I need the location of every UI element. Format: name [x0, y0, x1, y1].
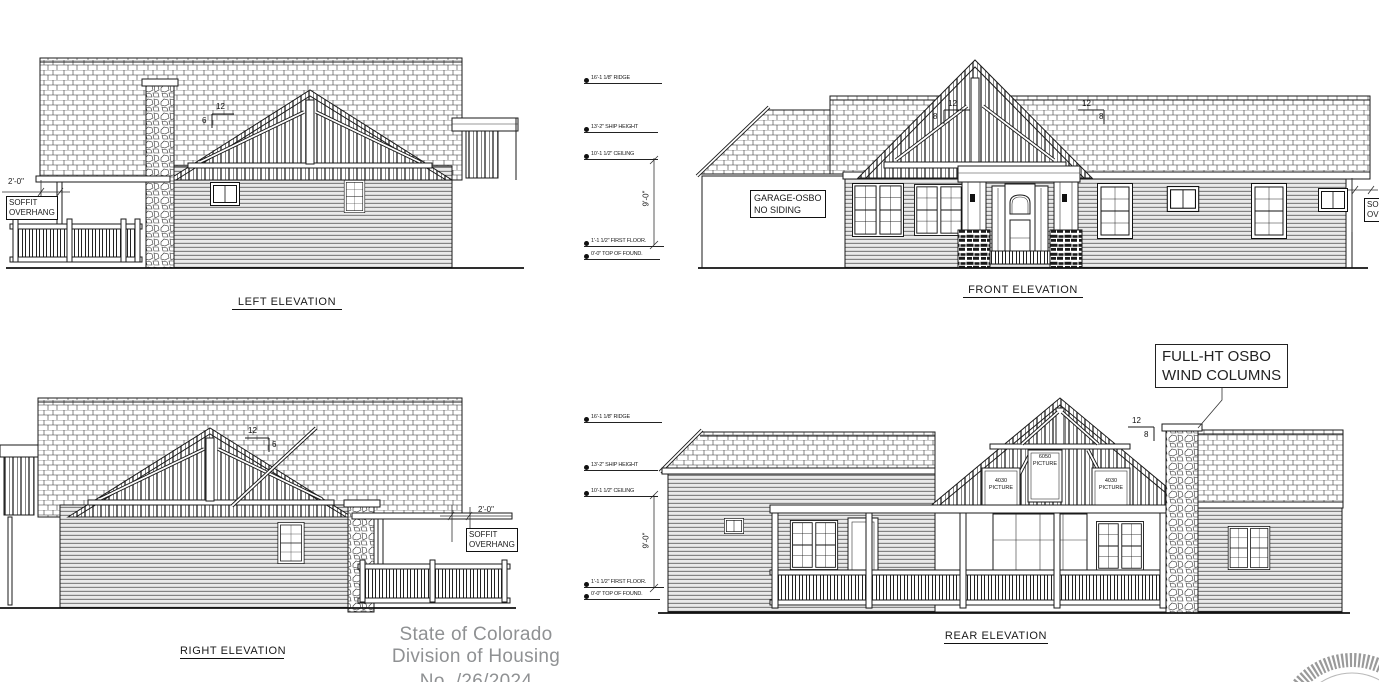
- front-elevation-title: FRONT ELEVATION: [963, 284, 1083, 298]
- porch-post: [1160, 513, 1166, 608]
- window: [278, 522, 304, 563]
- entry-column: [1054, 182, 1078, 230]
- window: [914, 185, 963, 236]
- soffit-overhang-line1: SOFFIT: [1367, 200, 1379, 210]
- wall-height-dimension-text: 9'-0": [642, 521, 651, 561]
- window: [1167, 187, 1198, 212]
- soffit-overhang-note: SOFFIT OVERHANG: [466, 528, 518, 552]
- pitch-marker: [1128, 427, 1154, 441]
- ridge-callout-text: 16'-1 1/8" RIDGE: [591, 415, 630, 421]
- window: [852, 184, 903, 237]
- elevation-marker-icon: [584, 154, 589, 159]
- elevation-marker-icon: [584, 594, 589, 599]
- wind-note-line1: FULL-HT OSBO: [1162, 347, 1281, 366]
- pitch-run-text: 12: [1082, 99, 1091, 108]
- note-leader-line: [1198, 386, 1222, 428]
- pitch-run-text: 12: [248, 426, 257, 435]
- pitch-rise-text: 6: [202, 116, 206, 125]
- porch-light: [1062, 194, 1067, 202]
- window-type-text: PICTURE: [1028, 461, 1062, 468]
- window: [1319, 189, 1348, 212]
- rear-elevation-drawing: [650, 386, 1350, 613]
- ceiling-callout: 10'-1 1/2" CEILING: [584, 152, 658, 160]
- soffit-overhang-line1: SOFFIT: [469, 530, 515, 540]
- ridge-callout-text: 16'-1 1/8" RIDGE: [591, 76, 630, 82]
- porch-light: [970, 194, 975, 202]
- ridge-callout: 16'-1 1/8" RIDGE: [584, 76, 662, 84]
- window-type-text: PICTURE: [1092, 485, 1130, 492]
- elevation-marker-icon: [584, 582, 589, 587]
- stone-column-base: [1050, 230, 1082, 268]
- ridge-callout: 16'-1 1/8" RIDGE: [584, 415, 662, 423]
- left-elevation-title: LEFT ELEVATION: [232, 296, 342, 310]
- window: [1252, 184, 1287, 239]
- soffit-overhang-line2: OVERHANG: [1367, 210, 1379, 220]
- wall-height-dimension: [650, 491, 658, 592]
- right-elevation-title: RIGHT ELEVATION: [180, 645, 284, 659]
- wall-height-dimension: [650, 156, 658, 249]
- porch-post: [960, 513, 966, 608]
- soffit-overhang-line1: SOFFIT: [9, 198, 55, 208]
- certification-seal: [1282, 660, 1379, 682]
- stone-column-base: [958, 230, 990, 268]
- first-floor-callout: 1'-1 1/2" FIRST FLOOR.: [584, 239, 664, 247]
- approval-number-partial: No. /26/2024: [326, 671, 626, 682]
- left-elevation-drawing: [2, 58, 524, 268]
- pitch-run-text: 12: [1132, 416, 1141, 425]
- ship-height-callout: 13'-2" SHIP HEIGHT: [584, 125, 658, 133]
- soffit-overhang-note-clipped: SOFFIT OVERHANG: [1364, 198, 1379, 222]
- garage-osbo-note: GARAGE-OSBO NO SIDING: [750, 190, 826, 218]
- soffit-overhang-note: SOFFIT OVERHANG: [6, 196, 58, 220]
- top-of-foundation-callout-text: 0'-0" TOP OF FOUND.: [591, 252, 642, 258]
- soffit-dimension-text: 2'-0": [478, 505, 494, 514]
- garage-note-line1: GARAGE-OSBO: [754, 192, 822, 204]
- pitch-rise-text: 8: [933, 112, 937, 121]
- window: [211, 183, 240, 206]
- elevations-line-art: [0, 0, 1379, 682]
- stone-wind-column: [1166, 431, 1198, 613]
- ceiling-callout-text: 10'-1 1/2" CEILING: [591, 152, 634, 158]
- elevation-marker-icon: [584, 127, 589, 132]
- ship-height-callout: 13'-2" SHIP HEIGHT: [584, 463, 658, 471]
- window: [344, 180, 365, 212]
- garage-note-line2: NO SIDING: [754, 204, 822, 216]
- porch-post: [866, 513, 872, 608]
- pitch-run-text: 12: [216, 102, 225, 111]
- top-of-foundation-callout: 0'-0" TOP OF FOUND.: [584, 252, 660, 260]
- ceiling-callout-text: 10'-1 1/2" CEILING: [591, 489, 634, 495]
- soffit-overhang-line2: OVERHANG: [9, 208, 55, 218]
- window: [1096, 522, 1143, 571]
- wind-note-line2: WIND COLUMNS: [1162, 366, 1281, 385]
- ship-height-callout-text: 13'-2" SHIP HEIGHT: [591, 463, 638, 469]
- window-label-4030: 4030 PICTURE: [1092, 478, 1130, 491]
- ship-height-callout-text: 13'-2" SHIP HEIGHT: [591, 125, 638, 131]
- porch-post: [1054, 513, 1060, 608]
- window: [790, 520, 837, 569]
- rear-elevation-title: REAR ELEVATION: [944, 630, 1048, 644]
- wall-height-dimension-text: 9'-0": [642, 179, 651, 219]
- front-elevation-drawing: [650, 60, 1378, 268]
- wind-columns-note: FULL-HT OSBO WIND COLUMNS: [1155, 344, 1288, 388]
- top-of-foundation-callout: 0'-0" TOP OF FOUND.: [584, 592, 660, 600]
- window: [1098, 184, 1133, 239]
- porch-railing: [772, 574, 1168, 602]
- elevation-marker-icon: [584, 78, 589, 83]
- elevation-marker-icon: [584, 417, 589, 422]
- entry-column: [962, 182, 986, 230]
- pitch-rise-text: 6: [272, 440, 276, 449]
- pitch-run-text: 12: [948, 99, 957, 108]
- first-floor-callout: 1'-1 1/2" FIRST FLOOR.: [584, 580, 664, 588]
- first-floor-callout-text: 1'-1 1/2" FIRST FLOOR.: [591, 580, 646, 586]
- elevation-drawing-sheet: 2'-0" SOFFIT OVERHANG 12 6 LEFT ELEVATIO…: [0, 0, 1379, 682]
- elevation-marker-icon: [584, 465, 589, 470]
- window-label-6050: 6050 PICTURE: [1028, 454, 1062, 467]
- first-floor-callout-text: 1'-1 1/2" FIRST FLOOR.: [591, 239, 646, 245]
- pitch-rise-text: 8: [1099, 112, 1103, 121]
- ceiling-callout: 10'-1 1/2" CEILING: [584, 489, 658, 497]
- porch-post: [772, 513, 778, 608]
- elevation-marker-icon: [584, 491, 589, 496]
- agency-name-line2: Division of Housing: [326, 646, 626, 668]
- elevation-marker-icon: [584, 254, 589, 259]
- soffit-dimension-text: 2'-0": [8, 177, 24, 186]
- right-elevation-drawing: [0, 398, 516, 612]
- agency-name-line1: State of Colorado: [326, 624, 626, 646]
- window: [1228, 526, 1270, 569]
- window-type-text: PICTURE: [982, 485, 1020, 492]
- pitch-rise-text: 8: [1144, 430, 1148, 439]
- top-of-foundation-callout-text: 0'-0" TOP OF FOUND.: [591, 592, 642, 598]
- window-label-4030: 4030 PICTURE: [982, 478, 1020, 491]
- elevation-marker-icon: [584, 241, 589, 246]
- vent: [724, 518, 743, 533]
- soffit-overhang-line2: OVERHANG: [469, 540, 515, 550]
